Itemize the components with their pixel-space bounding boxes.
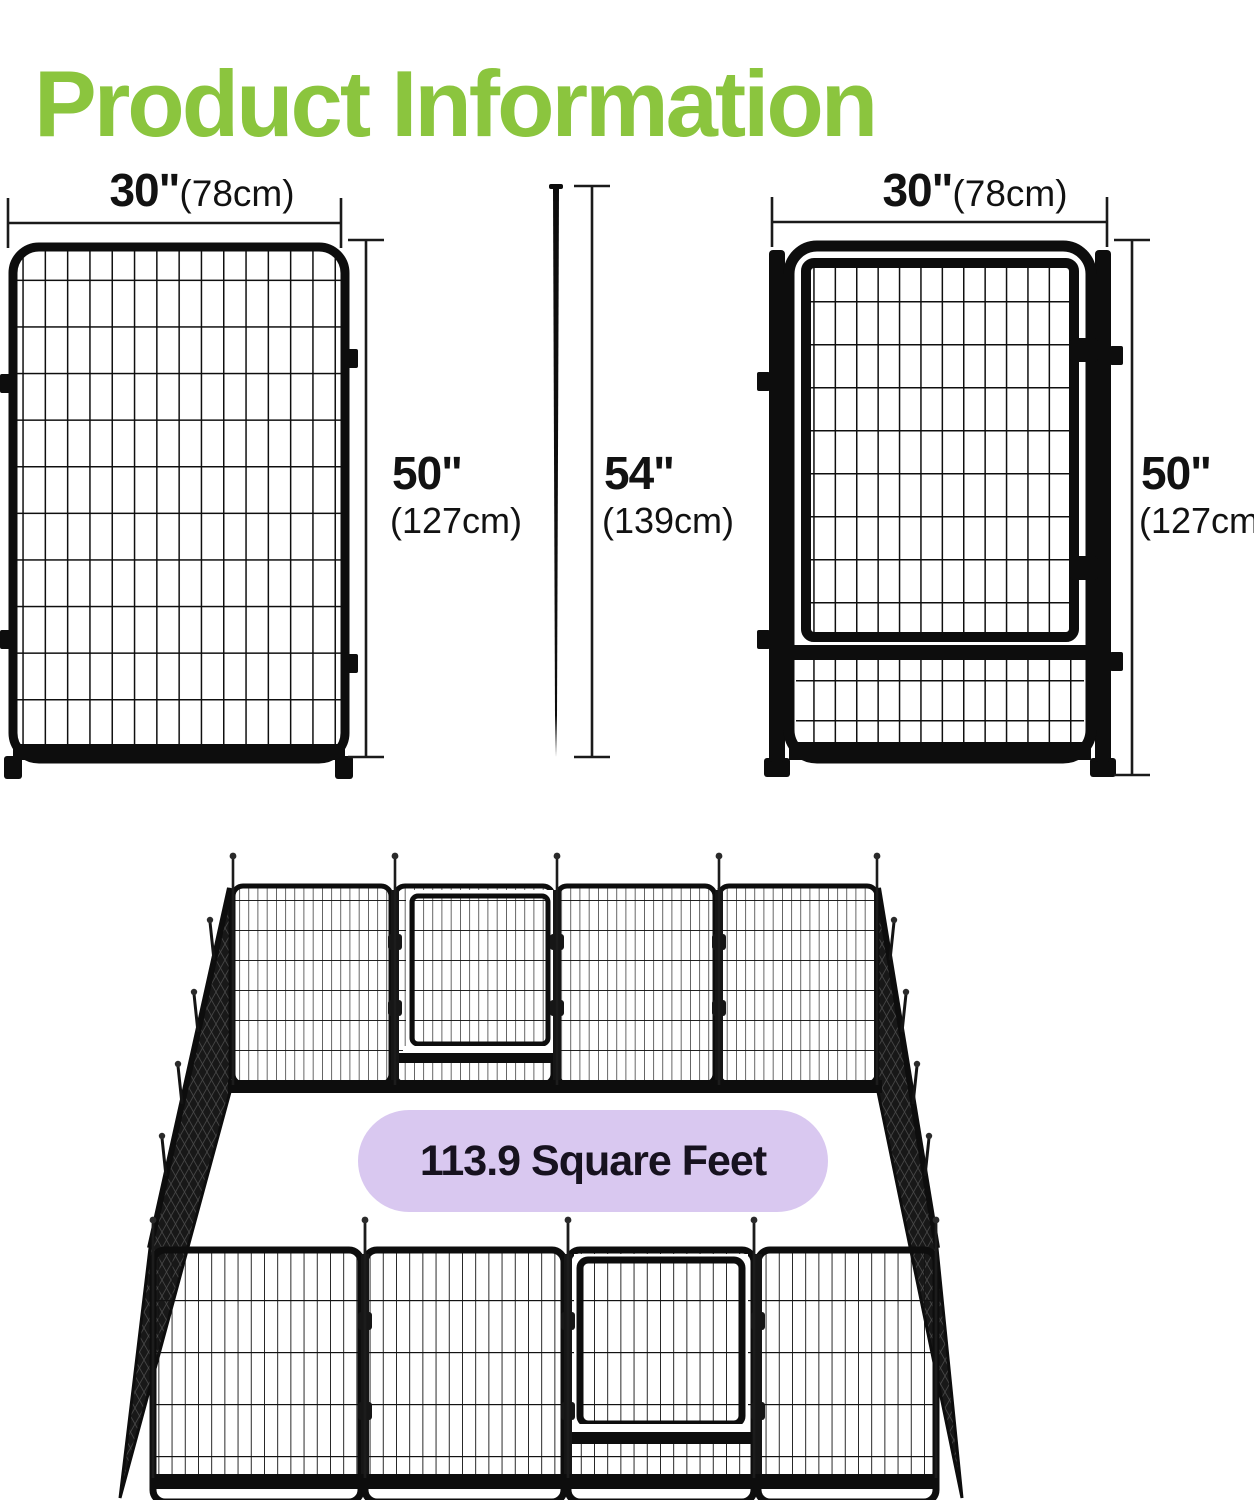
back-wall-gate: [397, 890, 555, 1063]
gate-door: [806, 263, 1074, 637]
front-wall-gate: [570, 1254, 752, 1444]
gate-lower-mesh: [796, 655, 1084, 747]
gate-right-post: [1095, 250, 1111, 762]
gate-height-inches: 50": [1141, 450, 1254, 496]
stake-diagram: [549, 184, 610, 757]
stake-height-inches: 54": [604, 450, 734, 496]
gate-width-cm: (78cm): [952, 173, 1067, 215]
fence-artwork-canvas: [0, 0, 1254, 1500]
gate-width-inches: 30": [882, 163, 952, 217]
gate-bottom-bar: [789, 742, 1091, 760]
playpen-back-wall: [228, 853, 882, 1093]
product-information-infographic: Product Information 30" (78cm) 50" (127c…: [0, 0, 1254, 1500]
panel-frame: [13, 247, 345, 759]
front-wall-bottom-bar: [150, 1474, 939, 1489]
panel-width-inches: 30": [109, 163, 179, 217]
stake-height-label: 54" (139cm): [604, 450, 734, 539]
panel-width-label: 30" (78cm): [109, 163, 294, 217]
panel-width-cm: (78cm): [179, 173, 294, 215]
gate-width-label: 30" (78cm): [882, 163, 1067, 217]
gate-left-post: [769, 250, 785, 762]
gate-panel-diagram: [757, 197, 1150, 777]
stake-cap: [549, 184, 563, 189]
panel-height-dimension: [348, 240, 384, 757]
stake-height-cm: (139cm): [602, 503, 734, 539]
page-title: Product Information: [34, 55, 875, 154]
back-wall-bottom-bar: [228, 1080, 882, 1093]
playpen-front-wall: [150, 1217, 940, 1500]
panel-height-cm: (127cm): [390, 503, 522, 539]
panel-diagram: [0, 198, 384, 779]
area-label: 113.9 Square Feet: [420, 1137, 766, 1186]
gate-height-label: 50" (127cm): [1141, 450, 1254, 539]
area-pill: 113.9 Square Feet: [358, 1110, 828, 1212]
panel-bottom-bar: [13, 744, 345, 760]
gate-height-cm: (127cm): [1139, 503, 1254, 539]
panel-height-inches: 50": [392, 450, 522, 496]
gate-middle-bar: [786, 645, 1094, 660]
stake-rod: [553, 189, 559, 757]
panel-height-label: 50" (127cm): [392, 450, 522, 539]
